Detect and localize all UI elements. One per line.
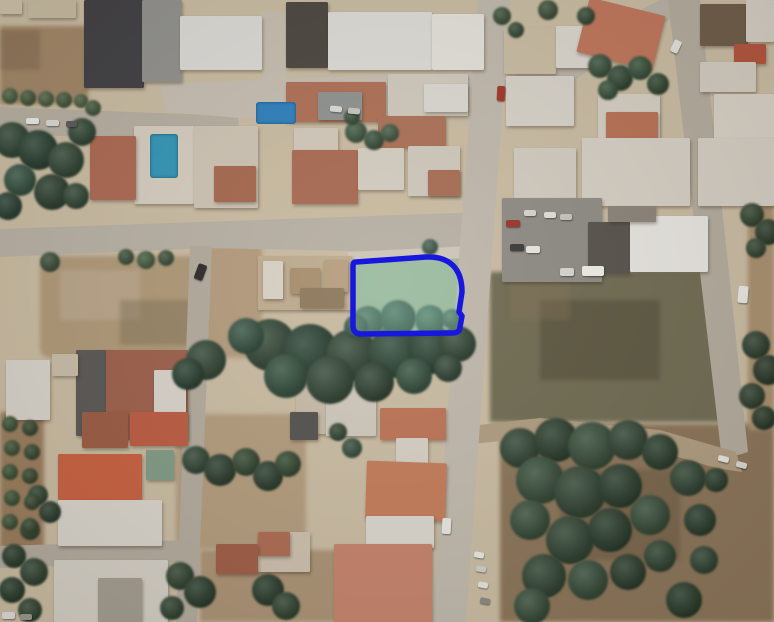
property-plot-highlight[interactable]: [353, 257, 462, 334]
plot-highlight-layer: [0, 0, 774, 622]
satellite-map[interactable]: [0, 0, 774, 622]
